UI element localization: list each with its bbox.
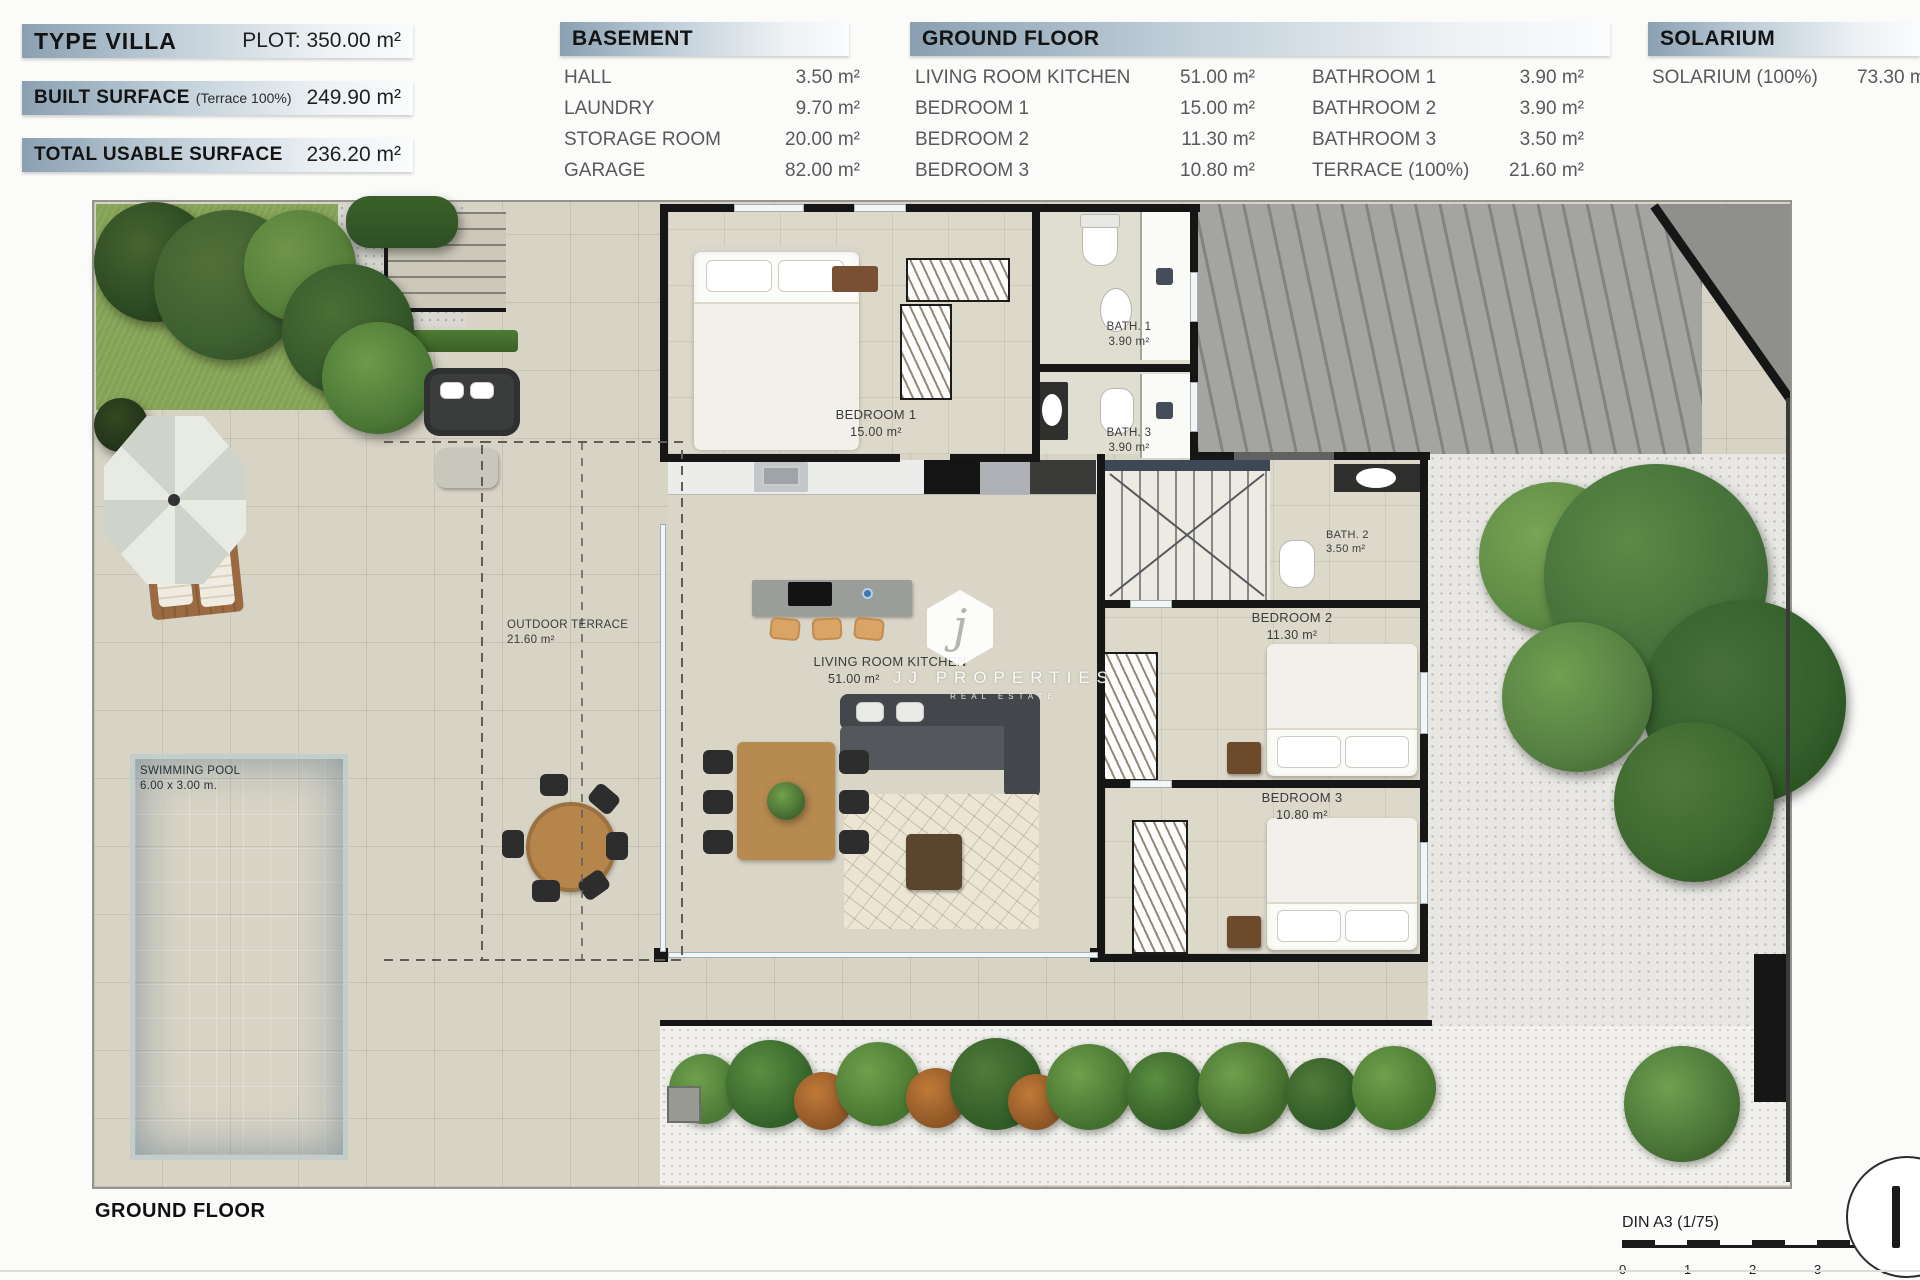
table-row: LAUNDRY9.70 m² xyxy=(564,93,860,124)
table-row: TERRACE (100%)21.60 m² xyxy=(1312,155,1584,186)
built-surface-sublabel: (Terrace 100%) xyxy=(196,90,292,106)
basement-header: BASEMENT xyxy=(560,22,849,56)
ground-floor-header: GROUND FLOOR xyxy=(910,22,1610,56)
page-edge-line xyxy=(0,1270,1920,1272)
table-row: BEDROOM 211.30 m² xyxy=(915,124,1255,155)
table-row: GARAGE82.00 m² xyxy=(564,155,860,186)
table-row: STORAGE ROOM20.00 m² xyxy=(564,124,860,155)
floor-plan-page: TYPE VILLA PLOT: 350.00 m² BUILT SURFACE… xyxy=(0,0,1920,1280)
floor-plan-drawing: SWIMMING POOL 6.00 x 3.00 m. xyxy=(92,200,1792,1189)
usable-surface-label: TOTAL USABLE SURFACE xyxy=(34,144,283,166)
table-row: HALL3.50 m² xyxy=(564,62,860,93)
bedroom2-label: BEDROOM 2 11.30 m² xyxy=(1222,610,1362,643)
table-row: LIVING ROOM KITCHEN51.00 m² xyxy=(915,62,1255,93)
type-villa-label: TYPE VILLA xyxy=(34,28,177,55)
watermark-initial: j xyxy=(953,599,967,653)
page-marker-circle xyxy=(1846,1156,1920,1278)
built-surface-label: BUILT SURFACE xyxy=(34,87,190,109)
summary-bar-built-surface: BUILT SURFACE (Terrace 100%) 249.90 m² xyxy=(22,81,413,115)
ground-floor-col1: LIVING ROOM KITCHEN51.00 m² BEDROOM 115.… xyxy=(915,62,1255,186)
ground-floor-title: GROUND FLOOR xyxy=(922,27,1099,51)
basement-table: HALL3.50 m² LAUNDRY9.70 m² STORAGE ROOM2… xyxy=(564,62,860,186)
outdoor-terrace-label: OUTDOOR TERRACE 21.60 m² xyxy=(507,618,637,648)
usable-surface-value: 236.20 m² xyxy=(306,143,401,167)
table-row: BATHROOM 13.90 m² xyxy=(1312,62,1584,93)
table-row: SOLARIUM (100%)73.30 m² xyxy=(1652,62,1920,93)
bath1-label: BATH. 1 3.90 m² xyxy=(1084,320,1174,350)
watermark-name: JJ PROPERTIES xyxy=(874,668,1134,688)
summary-bar-type-villa: TYPE VILLA PLOT: 350.00 m² xyxy=(22,24,413,58)
bedroom3-label: BEDROOM 3 10.80 m² xyxy=(1232,790,1372,823)
table-row: BEDROOM 310.80 m² xyxy=(915,155,1255,186)
floor-title: GROUND FLOOR xyxy=(95,1200,265,1223)
bath2-label: BATH. 2 3.50 m² xyxy=(1326,528,1416,557)
table-row: BATHROOM 33.50 m² xyxy=(1312,124,1584,155)
table-row: BATHROOM 23.90 m² xyxy=(1312,93,1584,124)
bedroom1-label: BEDROOM 1 15.00 m² xyxy=(806,407,946,440)
built-surface-value: 249.90 m² xyxy=(306,86,401,110)
ground-floor-col2: BATHROOM 13.90 m² BATHROOM 23.90 m² BATH… xyxy=(1312,62,1584,186)
basement-title: BASEMENT xyxy=(572,27,693,51)
solarium-header: SOLARIUM xyxy=(1648,22,1920,56)
bath3-label: BATH. 3 3.90 m² xyxy=(1084,426,1174,456)
solarium-table: SOLARIUM (100%)73.30 m² xyxy=(1652,62,1920,93)
table-row: BEDROOM 115.00 m² xyxy=(915,93,1255,124)
solarium-title: SOLARIUM xyxy=(1660,27,1775,51)
plot-value: PLOT: 350.00 m² xyxy=(242,29,401,53)
watermark-tagline: REAL ESTATE xyxy=(874,692,1134,701)
summary-bar-usable-surface: TOTAL USABLE SURFACE 236.20 m² xyxy=(22,138,413,172)
